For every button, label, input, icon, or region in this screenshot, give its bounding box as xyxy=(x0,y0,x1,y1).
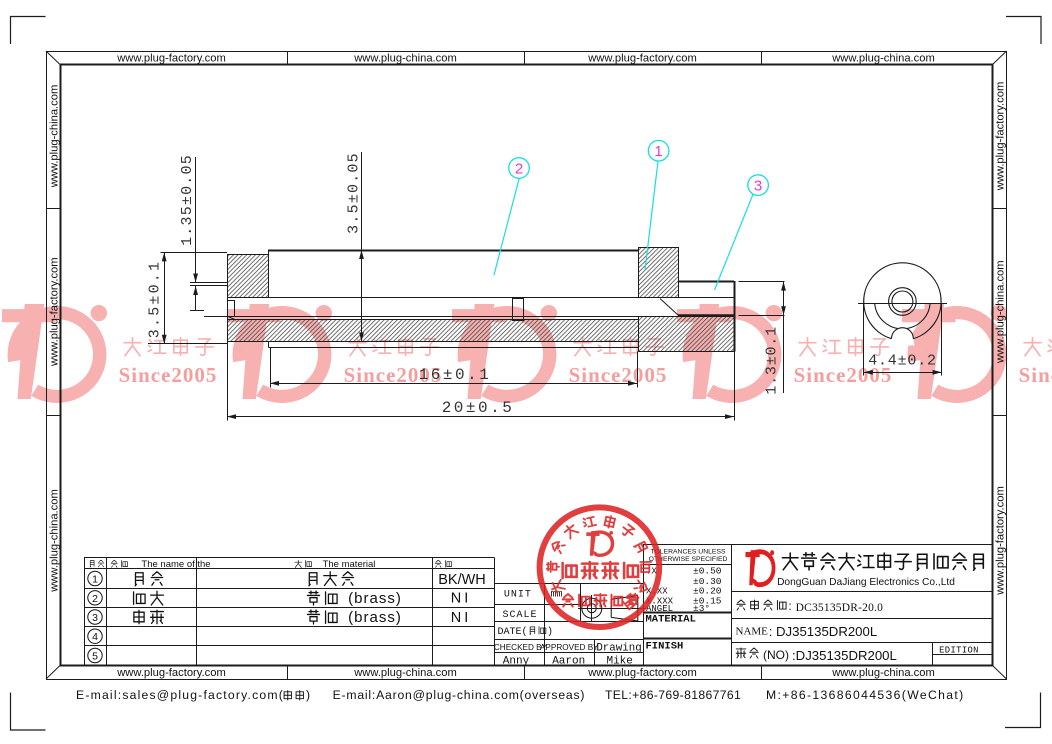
svg-text:): ) xyxy=(547,626,553,638)
svg-text:www.plug-china.com: www.plug-china.com xyxy=(831,667,935,679)
svg-text:www.plug-factory.com: www.plug-factory.com xyxy=(116,667,226,679)
svg-text:3.5±0.05: 3.5±0.05 xyxy=(346,152,363,234)
svg-text:NAME: NAME xyxy=(736,626,769,638)
svg-text:1: 1 xyxy=(654,143,662,160)
svg-text::: : xyxy=(788,599,791,613)
svg-text:DATE(: DATE( xyxy=(498,626,528,638)
svg-text:3: 3 xyxy=(754,178,762,195)
svg-text:The material: The material xyxy=(323,559,376,570)
svg-text:UNIT: UNIT xyxy=(504,590,532,601)
svg-text:Aaron: Aaron xyxy=(552,656,585,668)
svg-text:20±0.5: 20±0.5 xyxy=(442,399,515,417)
svg-text:www.plug-factory.com: www.plug-factory.com xyxy=(995,82,1007,192)
svg-text:DC35135DR-20.0: DC35135DR-20.0 xyxy=(796,602,884,614)
svg-text:: DJ35135DR200L: : DJ35135DR200L xyxy=(769,624,878,639)
svg-text:www.plug-factory.com: www.plug-factory.com xyxy=(49,257,61,367)
svg-text:NI: NI xyxy=(451,610,472,626)
svg-text:TOLERANCES UNLESS: TOLERANCES UNLESS xyxy=(650,549,726,556)
svg-text:E-mail:sales@plug-factory.com(: E-mail:sales@plug-factory.com( xyxy=(76,688,284,702)
svg-text:1.35±0.05: 1.35±0.05 xyxy=(179,154,196,246)
svg-text:www.plug-factory.com: www.plug-factory.com xyxy=(587,53,697,65)
svg-text:Mike: Mike xyxy=(606,656,632,668)
svg-text:The name of the: The name of the xyxy=(141,559,210,570)
svg-text:(brass): (brass) xyxy=(348,609,402,626)
svg-text:16±0.1: 16±0.1 xyxy=(419,366,492,384)
svg-text:NI: NI xyxy=(451,591,472,607)
svg-text::DJ35135DR200L: :DJ35135DR200L xyxy=(792,648,897,663)
svg-text:4: 4 xyxy=(92,631,98,643)
svg-text:Drawing: Drawing xyxy=(596,643,641,655)
svg-text:): ) xyxy=(306,688,310,702)
svg-text:www.plug-china.com: www.plug-china.com xyxy=(353,667,457,679)
svg-text:TEL:+86-769-81867761: TEL:+86-769-81867761 xyxy=(605,688,741,702)
svg-text:www.plug-china.com: www.plug-china.com xyxy=(831,53,935,65)
svg-text:2: 2 xyxy=(515,161,523,178)
svg-text:1: 1 xyxy=(92,574,98,586)
svg-text:(NO): (NO) xyxy=(763,648,789,662)
svg-text:www.plug-china.com: www.plug-china.com xyxy=(995,260,1007,364)
svg-text:Since2005: Since2005 xyxy=(1019,363,1052,387)
svg-text:www.plug-factory.com: www.plug-factory.com xyxy=(587,667,697,679)
svg-text:www.plug-factory.com: www.plug-factory.com xyxy=(995,486,1007,596)
svg-text:Anny: Anny xyxy=(503,656,530,668)
svg-text:SCALE: SCALE xyxy=(502,610,537,621)
svg-text:Since2005: Since2005 xyxy=(119,363,218,387)
svg-text:E-mail:Aaron@plug-china.com(ov: E-mail:Aaron@plug-china.com(overseas) xyxy=(333,688,586,702)
svg-text:www.plug-china.com: www.plug-china.com xyxy=(353,53,457,65)
svg-text:MATERIAL: MATERIAL xyxy=(646,614,696,626)
svg-text:www.plug-china.com: www.plug-china.com xyxy=(49,489,61,593)
svg-text:EDITION: EDITION xyxy=(939,645,979,655)
svg-text:FINISH: FINISH xyxy=(646,641,684,653)
svg-text:www.plug-china.com: www.plug-china.com xyxy=(49,85,61,189)
svg-text:BK/WH: BK/WH xyxy=(438,572,486,588)
svg-text:APPROVED BY: APPROVED BY xyxy=(540,643,599,652)
svg-text:1.3±0.1: 1.3±0.1 xyxy=(763,326,780,395)
svg-text:5: 5 xyxy=(92,651,98,663)
svg-text:DongGuan DaJiang Electronics C: DongGuan DaJiang Electronics Co.,Ltd xyxy=(777,577,955,588)
svg-text:(brass): (brass) xyxy=(348,590,402,607)
svg-text:3.5±0.1: 3.5±0.1 xyxy=(147,260,164,338)
svg-text:2: 2 xyxy=(92,593,98,605)
svg-text:3: 3 xyxy=(92,612,98,624)
svg-text:4.4±0.2: 4.4±0.2 xyxy=(868,353,937,370)
svg-text:M:+86-13686044536(WeChat): M:+86-13686044536(WeChat) xyxy=(766,688,965,702)
svg-text:www.plug-factory.com: www.plug-factory.com xyxy=(116,53,226,65)
